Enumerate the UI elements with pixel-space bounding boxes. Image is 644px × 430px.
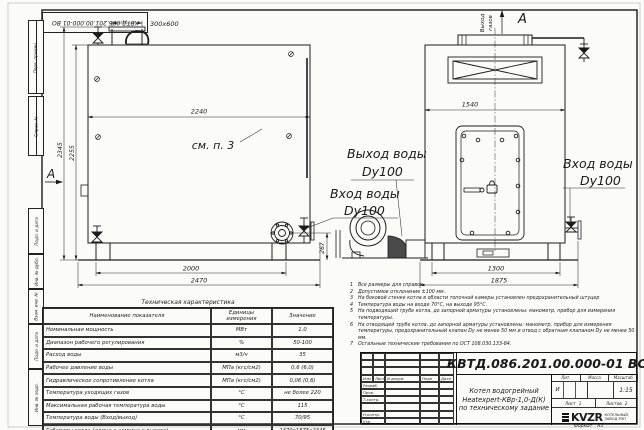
dim-1300-label: 1300 bbox=[488, 265, 505, 273]
rev-header-izm: Изм bbox=[361, 375, 373, 382]
table-row: Диапазон рабочего регулирования bbox=[43, 337, 211, 350]
water-inlet-fitting bbox=[565, 217, 581, 239]
scale-value: 1:15 bbox=[614, 382, 638, 398]
spec-table-title: Техническая характеристика bbox=[42, 299, 334, 306]
drawing-sheet: 300x600 2240 см. п. 3 2345 2255 А 2000 2… bbox=[0, 0, 644, 430]
lit-value: И bbox=[552, 382, 564, 398]
margin-box-perv-primen: Перв. примен. bbox=[28, 20, 44, 94]
kvzr-logo-subtitle: КОТЕЛЬНЫЙ ЗАВОД РЭП bbox=[604, 413, 628, 422]
spec-col-value: Значение bbox=[272, 308, 333, 324]
explosion-valve bbox=[126, 31, 148, 44]
lifting-point-symbols bbox=[95, 52, 294, 140]
dim-2255-label: 2255 bbox=[69, 145, 76, 161]
product-name: Котел водогрейный Heatexpert-КВр-1,0-Д(К… bbox=[456, 375, 551, 425]
format-label: Формат А3 bbox=[574, 424, 603, 429]
format-value: А3 bbox=[597, 424, 603, 429]
inlet-valve-icon bbox=[299, 218, 314, 243]
rev-header-list: Лист bbox=[373, 375, 385, 382]
boiler-front-view bbox=[420, 28, 589, 260]
lit-label: Лит. bbox=[552, 375, 581, 382]
sign-row-tkontr: Т.контр. bbox=[361, 396, 385, 403]
drain-valve-icon bbox=[92, 226, 102, 242]
water-outlet-label: Выход воды bbox=[347, 146, 427, 161]
inverted-doc-number-stamp: КВТД.086.201.00.000-01 ВО bbox=[42, 12, 148, 33]
table-row: Габариты котла (длина х ширина х высота) bbox=[43, 425, 211, 430]
mass-value bbox=[588, 382, 614, 398]
technical-notes: 1Все размеры для справок 2Допустимое отк… bbox=[345, 283, 638, 349]
revision-grid: Изм Лист N докум. Подп Дата Разраб. Пров… bbox=[361, 353, 456, 425]
sign-row-prov: Пров. bbox=[361, 389, 385, 396]
note-6: 6На отводящей трубе котла, до запорной а… bbox=[345, 323, 638, 343]
dim-2000-label: 2000 bbox=[183, 265, 200, 273]
water-inlet-right-dn: Dy100 bbox=[580, 173, 621, 188]
water-outlet-dn: Dy100 bbox=[362, 164, 403, 179]
view-a-mark: А bbox=[46, 167, 55, 181]
spec-table: Техническая характеристика Наименование … bbox=[42, 299, 334, 430]
door-lock-icon bbox=[487, 181, 497, 193]
dim-2470-label: 2470 bbox=[191, 277, 208, 285]
gas-outlet-label-1: Выход bbox=[480, 14, 486, 33]
water-inlet-left-dn: Dy100 bbox=[344, 203, 385, 218]
rev-header-data: Дата bbox=[439, 375, 454, 382]
dim-1540-label: 1540 bbox=[462, 101, 479, 109]
margin-box-sprav-no: Справ. № bbox=[28, 96, 44, 156]
support-skid-left-view bbox=[78, 243, 320, 260]
sheets-cell: Листов2 bbox=[596, 399, 639, 407]
rev-header-ndocum: N докум. bbox=[385, 375, 420, 382]
dim-2240-label: 2240 bbox=[191, 108, 208, 116]
table-row: Рабочее давление воды bbox=[43, 362, 211, 375]
sign-row-nkontr: Н.контр. bbox=[361, 411, 385, 418]
support-skid-front-view bbox=[420, 243, 578, 260]
see-note-label: см. п. 3 bbox=[192, 139, 235, 152]
view-a-label: А bbox=[517, 12, 527, 27]
spec-table-grid: Наименование показателя Единицы измерени… bbox=[42, 307, 334, 430]
note-3: 3На боковой стенке котла в области топоч… bbox=[345, 296, 638, 303]
sheet-cell: Лист1 bbox=[552, 399, 596, 407]
table-row: Гидравлическое сопротивление котла bbox=[43, 374, 211, 387]
door-handle bbox=[464, 188, 484, 192]
note-7: 7Остальные технические требования по ОСТ… bbox=[345, 342, 638, 349]
spec-col-name: Наименование показателя bbox=[43, 308, 211, 324]
upper-hatch bbox=[448, 57, 542, 83]
kvzr-logo-bars-icon bbox=[562, 413, 569, 422]
water-inlet-left-label: Вход воды bbox=[330, 186, 400, 201]
dim-267-label: 267 bbox=[319, 242, 326, 254]
doc-number: КВТД.086.201.00.000-01 ВО bbox=[456, 353, 638, 375]
note-5: 5На подводящей трубе котла, до запорной … bbox=[345, 309, 638, 322]
furnace-door bbox=[456, 126, 524, 240]
title-block-right: Лит. Масса Масштаб И 1:15 Лист1 Листов2 bbox=[551, 375, 638, 425]
table-row: Максимальная рабочая температура воды bbox=[43, 400, 211, 413]
water-flange bbox=[271, 222, 293, 244]
sign-row-utv: Утв. bbox=[361, 418, 385, 425]
table-row: Расход воды bbox=[43, 349, 211, 362]
margin-box-podp-data-1: Подп. и дата bbox=[28, 208, 44, 254]
margin-box-inv-dubl: Инв. № дубл. bbox=[28, 254, 44, 289]
table-row: Номинальная мощность bbox=[43, 324, 211, 337]
scale-label: Масштаб bbox=[609, 375, 638, 382]
water-inlet-right-label: Вход воды bbox=[563, 156, 633, 171]
mass-label: Масса bbox=[581, 375, 610, 382]
sign-row-razrab: Разраб. bbox=[361, 382, 385, 389]
table-row: Температура воды (Вход/выход) bbox=[43, 412, 211, 425]
inverted-doc-number: КВТД.086.201.00.000-01 ВО bbox=[52, 19, 139, 26]
table-row: Температура уходящих газов bbox=[43, 387, 211, 400]
dim-2345-label: 2345 bbox=[57, 142, 64, 158]
spec-col-units: Единицы измерения bbox=[211, 308, 272, 324]
rev-header-podp: Подп bbox=[420, 375, 439, 382]
gas-pipe-valve bbox=[532, 38, 589, 62]
title-block: Изм Лист N докум. Подп Дата Разраб. Пров… bbox=[360, 352, 637, 424]
note-1: 1Все размеры для справок bbox=[345, 283, 638, 290]
dim-chimney-label: 300x600 bbox=[150, 20, 179, 28]
gas-outlet-label-2: газов bbox=[488, 15, 494, 31]
